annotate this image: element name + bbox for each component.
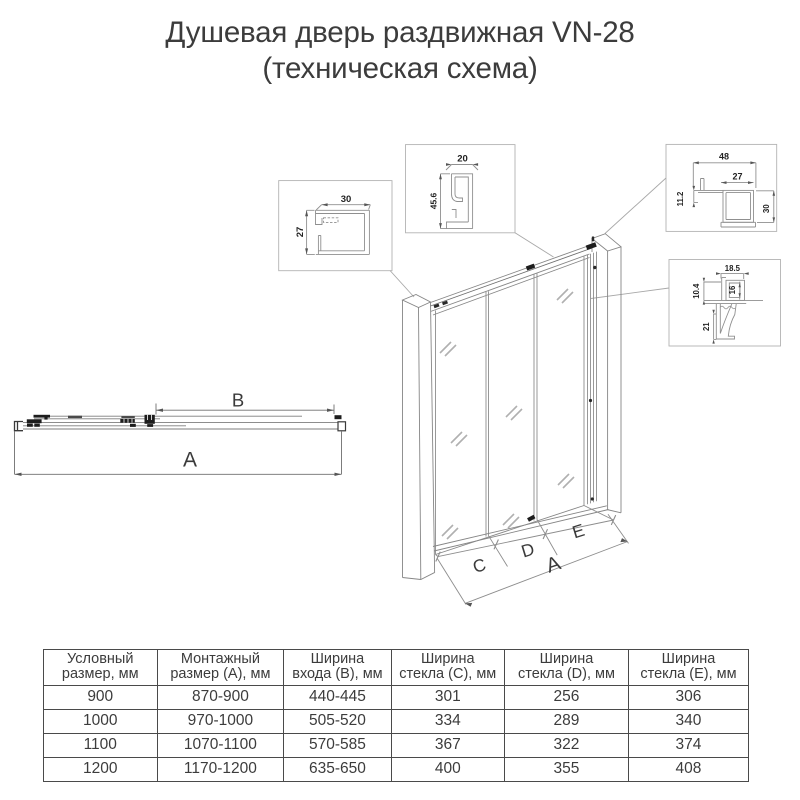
svg-text:C: C xyxy=(470,554,488,577)
svg-text:48: 48 xyxy=(719,152,729,162)
svg-text:20: 20 xyxy=(457,154,468,165)
svg-text:A: A xyxy=(183,449,197,472)
svg-text:A: A xyxy=(543,551,564,577)
svg-text:27: 27 xyxy=(295,227,306,238)
svg-text:11.2: 11.2 xyxy=(676,191,685,206)
svg-text:10.4: 10.4 xyxy=(692,283,701,299)
svg-text:27: 27 xyxy=(732,172,742,182)
svg-text:E: E xyxy=(570,520,587,543)
svg-text:45.6: 45.6 xyxy=(429,192,439,209)
svg-text:D: D xyxy=(519,539,537,562)
svg-text:16: 16 xyxy=(728,285,737,294)
svg-text:30: 30 xyxy=(762,204,771,213)
svg-text:21: 21 xyxy=(702,322,711,331)
svg-text:30: 30 xyxy=(341,194,352,205)
svg-text:B: B xyxy=(232,390,244,411)
svg-text:18.5: 18.5 xyxy=(725,264,741,273)
